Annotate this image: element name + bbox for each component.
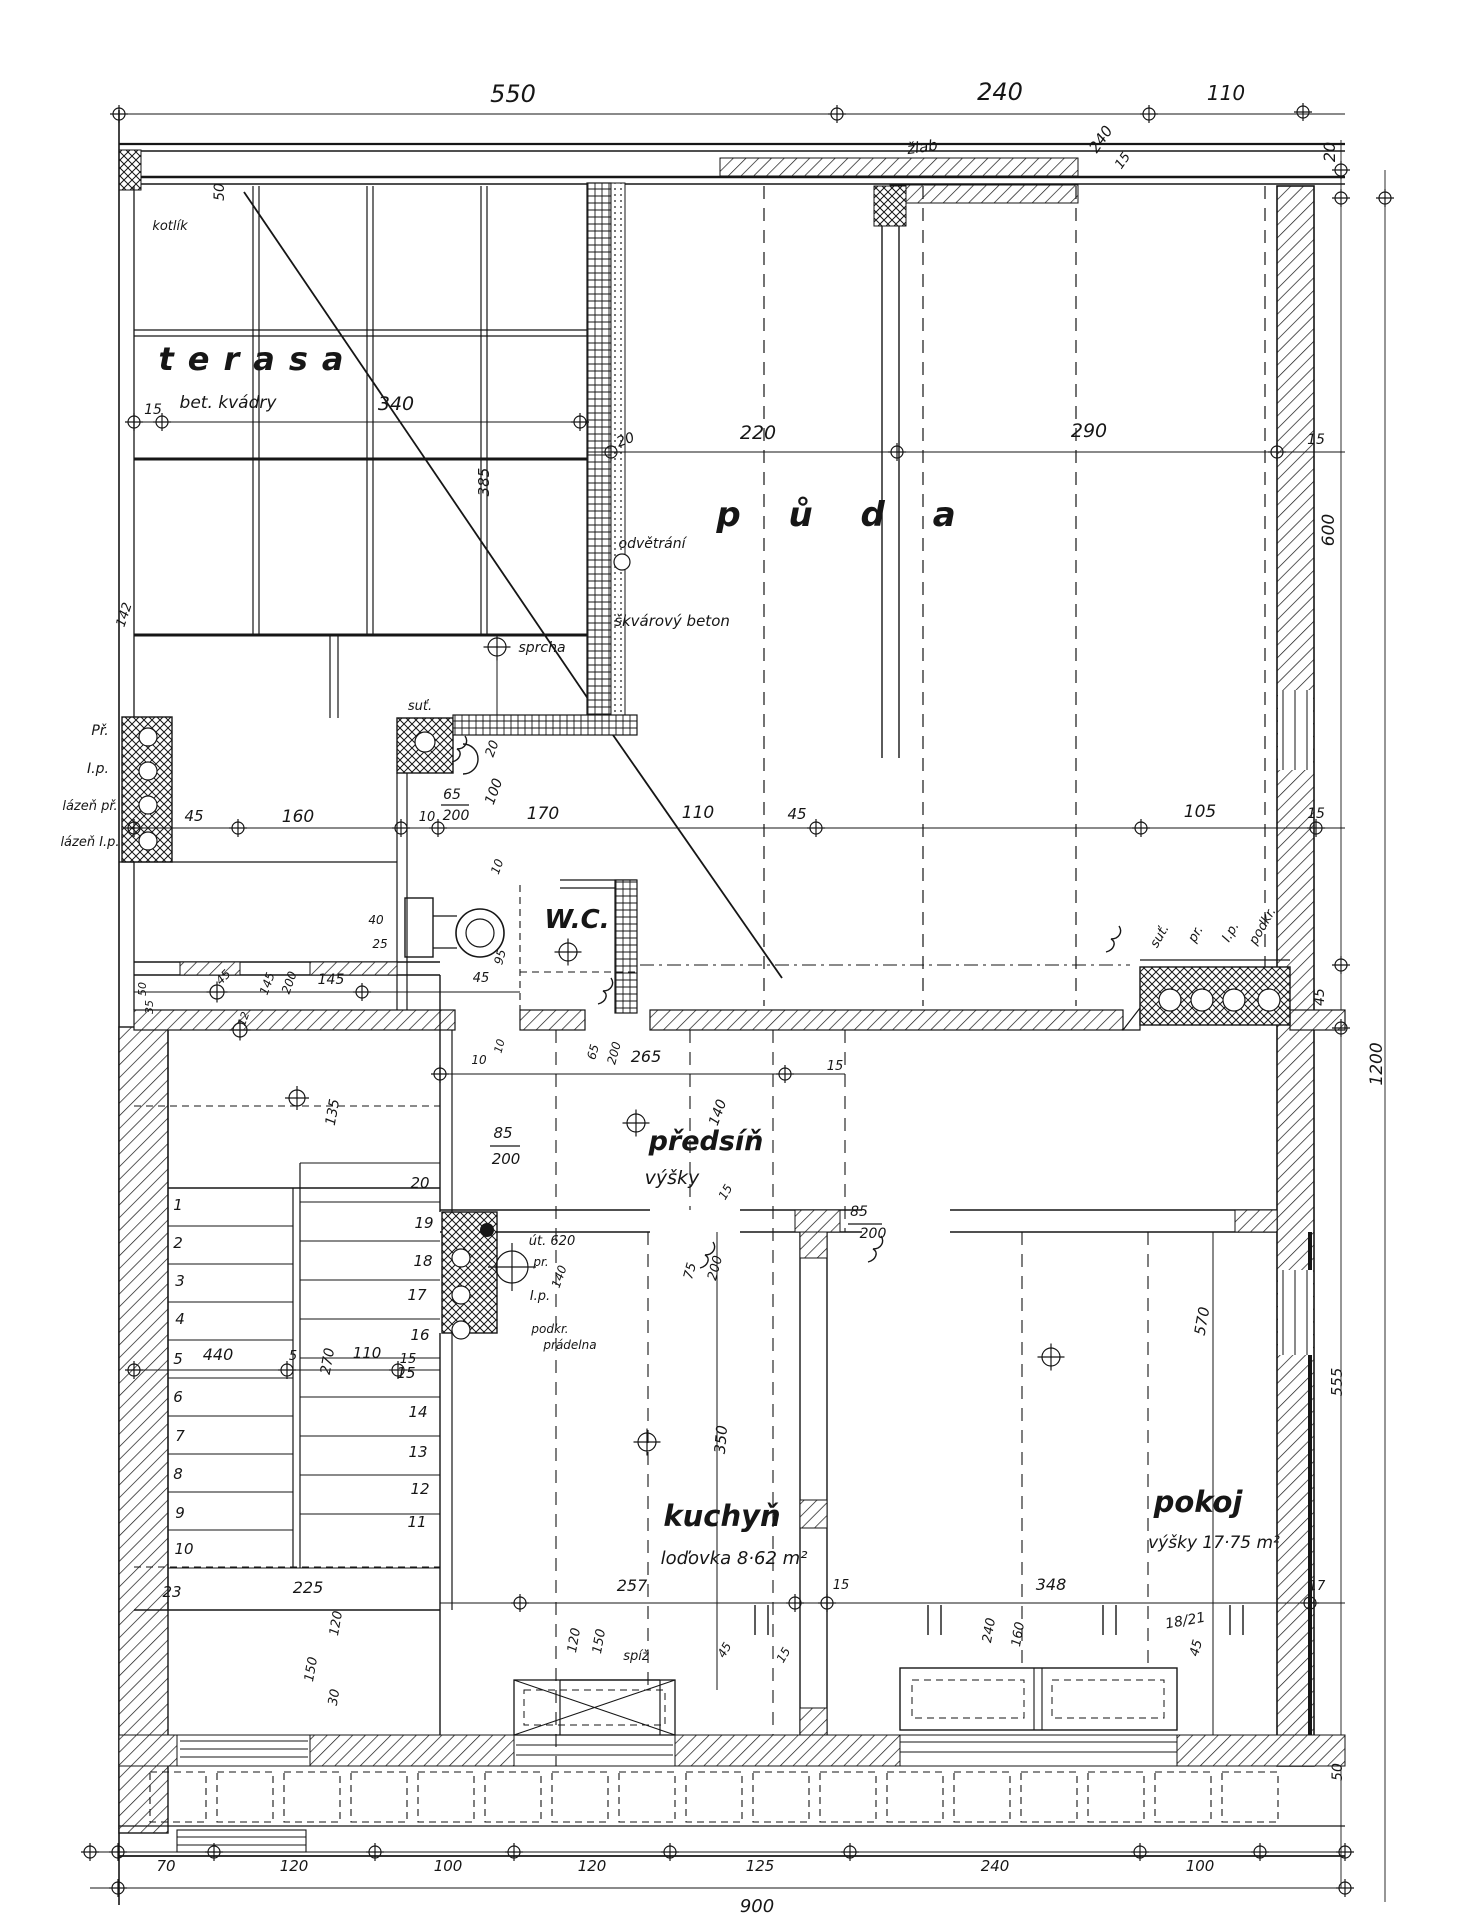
dimension-label: 10 <box>419 810 436 825</box>
dimension-label: 385 <box>475 468 493 497</box>
dimension-label: 440 <box>203 1345 234 1364</box>
floor-plan-canvas: terasa bet. kvádry p ů d a W.C. předsíň … <box>0 0 1465 1920</box>
dimension-label: 100 <box>1186 1857 1215 1875</box>
floor-plan-sheet: terasa bet. kvádry p ů d a W.C. předsíň … <box>0 0 1465 1920</box>
dimension-label: 200 <box>492 1150 521 1168</box>
dimension-label: 13 <box>408 1443 427 1461</box>
duct-circle <box>1223 989 1245 1011</box>
dimension-label: 45 <box>473 971 490 986</box>
dimension-label: pr. <box>532 1255 548 1269</box>
dimension-label: 265 <box>631 1047 662 1066</box>
dimension-label: 15 <box>833 1578 850 1593</box>
dimension-label: 45 <box>184 807 203 825</box>
dimension-label: 350 <box>711 1425 731 1455</box>
dimension-label: 145 <box>318 972 345 988</box>
dimension-label: 50 <box>1330 1763 1346 1781</box>
dimension-label: 200 <box>860 1226 887 1242</box>
dimension-label: 7 <box>175 1427 185 1445</box>
dimension-label: 16 <box>410 1326 429 1344</box>
dimension-label: 20 <box>1320 142 1339 162</box>
duct-circle <box>139 728 157 746</box>
room-label-pokoj: pokoj <box>1153 1485 1244 1519</box>
dimension-label: 40 <box>368 913 384 927</box>
dimension-label: 110 <box>1207 81 1245 105</box>
room-label-puda: p ů d a <box>715 495 973 535</box>
dimension-label: 225 <box>293 1578 324 1597</box>
dimension-label: 23 <box>162 1583 181 1601</box>
dimension-label: 45 <box>1312 988 1328 1006</box>
dimension-label: 110 <box>682 803 714 823</box>
duct-circle <box>452 1286 470 1304</box>
dimension-label: 15 <box>1307 432 1325 448</box>
dimension-label: 240 <box>977 78 1023 106</box>
dimension-label: 85 <box>850 1204 868 1220</box>
dimension-label: 35 <box>143 1000 156 1014</box>
dimension-label: I.p. <box>87 761 109 777</box>
dimension-label: 15 <box>1307 806 1325 822</box>
dimension-label: 160 <box>282 807 314 827</box>
dimension-label: 6 <box>173 1388 183 1406</box>
dimension-label: 3 <box>175 1272 185 1290</box>
dimension-label: 4 <box>175 1310 185 1328</box>
dimension-label: lázeň př. <box>62 799 117 814</box>
dimension-label: 5 <box>289 1349 297 1364</box>
duct-circle <box>415 732 435 752</box>
duct-circle <box>1258 989 1280 1011</box>
duct-circle <box>139 832 157 850</box>
dimension-label: 220 <box>740 422 776 444</box>
dimension-label: 12 <box>410 1480 429 1498</box>
dimension-label: 30 <box>326 1688 344 1707</box>
drain-dot <box>480 1223 494 1237</box>
dimension-label: 600 <box>1319 514 1339 546</box>
dimension-label: 1 <box>173 1196 183 1214</box>
room-note-terasa: bet. kvádry <box>180 393 278 413</box>
dimension-label: Př. <box>91 723 108 739</box>
dimension-label: 125 <box>746 1857 775 1875</box>
dimension-label: 11 <box>407 1513 426 1531</box>
dimension-label: út. 620 <box>529 1234 575 1249</box>
total-width-label: 900 <box>740 1896 774 1917</box>
dimension-label: 25 <box>372 937 387 951</box>
dimension-label: 348 <box>1036 1575 1067 1594</box>
dimension-label: kotlík <box>152 219 188 234</box>
dimension-label: 15 <box>396 1364 415 1382</box>
dimension-label: 45 <box>787 805 806 823</box>
dimension-label: 120 <box>280 1857 309 1875</box>
dimension-label: škvárový beton <box>614 612 730 630</box>
dimension-label: 240 <box>981 1857 1010 1875</box>
dimension-label: 9 <box>175 1504 185 1522</box>
dimension-label: 15 <box>144 402 162 418</box>
dimension-label: 17 <box>1309 1579 1326 1594</box>
dimension-label: 17 <box>407 1286 427 1304</box>
room-label-wc: W.C. <box>544 905 609 935</box>
dimension-label: 10 <box>174 1540 193 1558</box>
dimension-label: 340 <box>378 393 414 415</box>
dimension-label: 5 <box>173 1350 183 1368</box>
dimension-label: odvětrání <box>619 536 688 552</box>
duct-circle <box>614 554 630 570</box>
dimension-label: 18 <box>413 1252 432 1270</box>
dimension-label: 257 <box>617 1576 648 1595</box>
dimension-label: spíž <box>623 1649 650 1664</box>
dimension-label: 19 <box>414 1214 433 1232</box>
dimension-label: 550 <box>490 80 536 108</box>
filled-dots-layer <box>480 1223 494 1237</box>
dimension-label: prádelna <box>542 1338 596 1352</box>
duct-circle <box>1159 989 1181 1011</box>
dimension-label: 100 <box>434 1857 463 1875</box>
room-label-kuchyn: kuchyň <box>663 1499 780 1533</box>
duct-circle <box>1191 989 1213 1011</box>
dimension-label: 20 <box>410 1174 429 1192</box>
dimension-label: 555 <box>1328 1368 1346 1397</box>
dimension-label: 14 <box>408 1403 427 1421</box>
dimension-label: 110 <box>353 1344 382 1362</box>
room-note-predsin: výšky <box>645 1167 700 1189</box>
dimension-label: 200 <box>443 808 470 824</box>
duct-circle <box>139 796 157 814</box>
dimension-label: podkr. <box>530 1322 568 1336</box>
dimension-label: 65 <box>443 787 461 803</box>
room-note-pokoj: výšky 17·75 m² <box>1148 1533 1280 1553</box>
duct-circle <box>452 1321 470 1339</box>
dimension-label: I.p. <box>530 1289 550 1304</box>
dimension-label: 1200 <box>1367 1042 1387 1085</box>
dimension-label: suť. <box>408 699 432 714</box>
dimension-label: 70 <box>156 1857 175 1875</box>
dimension-label: 85 <box>493 1124 512 1142</box>
room-note-kuchyn: loďovka 8·62 m² <box>661 1548 808 1569</box>
room-label-terasa: terasa <box>158 340 357 378</box>
dimension-label: 120 <box>578 1857 607 1875</box>
duct-circle <box>452 1249 470 1267</box>
dimension-label: sprcha <box>518 640 565 656</box>
dimension-label: 105 <box>1184 802 1216 822</box>
dimension-label: 170 <box>527 804 559 824</box>
dimension-label: lázeň I.p. <box>60 835 119 850</box>
dimension-label: 10 <box>471 1053 487 1067</box>
dimension-label: 290 <box>1071 420 1107 442</box>
dimension-label: 8 <box>173 1465 183 1483</box>
dimension-label: 50 <box>212 183 228 201</box>
dimension-label: 50 <box>136 982 149 996</box>
room-label-predsin: předsíň <box>648 1126 764 1157</box>
duct-circle <box>139 762 157 780</box>
dimension-label: 15 <box>827 1059 844 1074</box>
dimension-label: 2 <box>173 1234 183 1252</box>
